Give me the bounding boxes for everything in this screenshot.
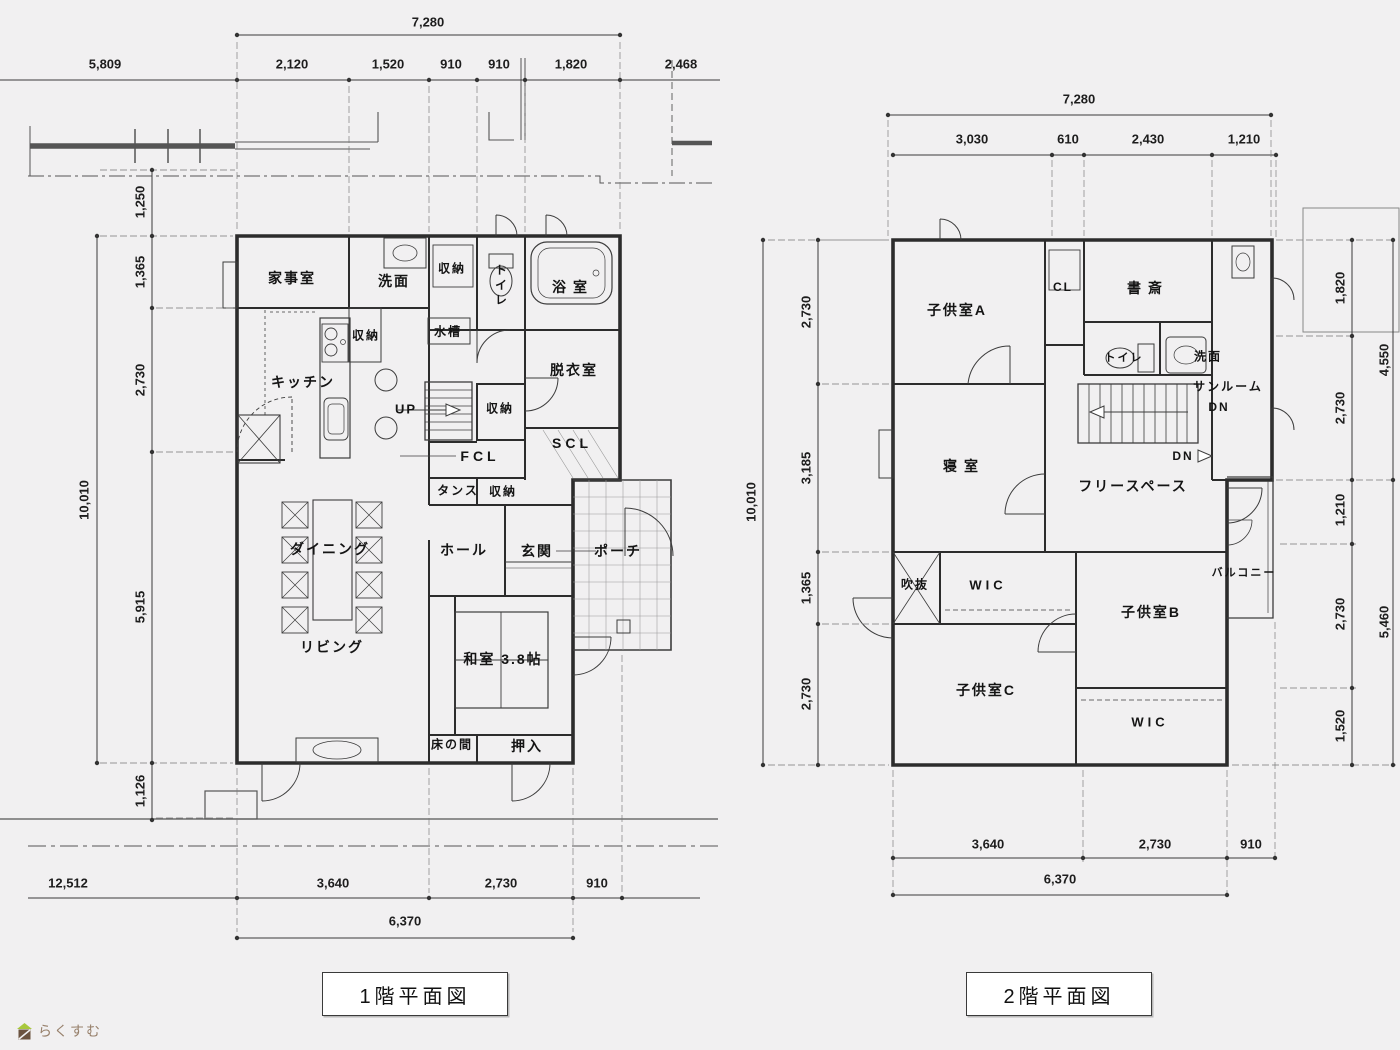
f1-dim-left-2: 2,730 (133, 364, 148, 397)
f1-room-label-genkan: 玄関 (521, 541, 553, 561)
f2-dim-bottom-2: 910 (1240, 837, 1262, 852)
f1-dim-top-6: 2,468 (665, 57, 698, 72)
f2-dim-left-3: 2,730 (799, 678, 814, 711)
f2-room-label-kodomoA: 子供室A (927, 300, 987, 320)
f1-room-label-shuno-fcl: 収納 (489, 483, 517, 500)
f2-room-label-cl: CL (1053, 280, 1073, 294)
f1-room-label-up: UP (395, 402, 417, 417)
f2-room-label-shinshitsu: 寝室 (943, 456, 985, 476)
f2-dim-left-2: 1,365 (799, 572, 814, 605)
f2-dim-top-2: 2,430 (1132, 132, 1165, 147)
site-logo: らくすむ (16, 1021, 102, 1041)
f1-dim-top-total: 7,280 (412, 15, 445, 30)
f1-room-label-porch: ポーチ (594, 541, 642, 561)
f1-room-label-oshiire: 押入 (511, 736, 543, 756)
f2-dim-left-total: 10,010 (744, 482, 759, 522)
floor1-title-box: 1階平面図 (322, 972, 508, 1016)
house-logo-icon (16, 1023, 33, 1040)
f1-room-label-tokonoma: 床の間 (431, 736, 473, 753)
f2-dim-right-1: 2,730 (1333, 392, 1348, 425)
fixtures-floor1 (223, 215, 673, 801)
f1-dim-left-total: 10,010 (77, 480, 92, 520)
f2-room-label-freespace: フリースペース (1078, 476, 1188, 496)
f1-dim-bottom-1: 3,640 (317, 876, 350, 891)
fixtures-floor2 (853, 208, 1399, 700)
f2-dim-bottom-1: 2,730 (1139, 837, 1172, 852)
f1-room-label-kitchen: キッチン (271, 372, 335, 392)
f1-dim-left-4: 1,126 (133, 775, 148, 808)
f1-room-label-scl: SCL (552, 435, 592, 451)
dimension-lines-floor2 (761, 113, 1396, 900)
f2-room-label-fukinuke: 吹抜 (901, 576, 929, 593)
f2-dim-left-1: 3,185 (799, 452, 814, 485)
f1-dim-bottom-3: 910 (586, 876, 608, 891)
walls-floor1 (237, 236, 620, 763)
f1-dim-top-3: 910 (440, 57, 462, 72)
f1-dim-top-4: 910 (488, 57, 510, 72)
f1-room-label-dining: ダイニング (290, 539, 370, 559)
f1-room-label-yokushitsu: 浴室 (552, 277, 594, 297)
f1-dim-top-1: 2,120 (276, 57, 309, 72)
f1-room-label-toire: トイレ (493, 264, 510, 309)
f2-room-label-senmen: 洗面 (1194, 348, 1222, 365)
floor1-title: 1階平面図 (359, 980, 470, 1009)
floor2-title: 2階平面図 (1003, 980, 1114, 1009)
f1-room-label-hall: ホール (440, 540, 488, 560)
f2-dim-top-1: 610 (1057, 132, 1079, 147)
f2-dim-right-4: 1,520 (1333, 710, 1348, 743)
f1-room-label-suiso: 水槽 (434, 323, 462, 340)
f1-room-label-kajishitsu: 家事室 (268, 268, 316, 288)
f1-room-label-datsui: 脱衣室 (550, 360, 598, 380)
f2-room-label-wic2: WIC (1131, 715, 1168, 730)
f1-dim-bottom-2: 2,730 (485, 876, 518, 891)
f2-room-label-dn1: DN (1208, 400, 1229, 414)
f1-dim-top-0: 5,809 (89, 57, 122, 72)
f2-room-label-kodomoC: 子供室C (956, 680, 1016, 700)
f2-room-label-balcony: バルコニー (1212, 564, 1277, 580)
f1-room-label-shuno-top: 収納 (438, 260, 466, 277)
f1-room-label-washitsu: 和室 3.8帖 (463, 649, 542, 669)
f1-dim-left-3: 5,915 (133, 591, 148, 624)
f2-room-label-wic1: WIC (969, 578, 1006, 593)
f1-dim-top-2: 1,520 (372, 57, 405, 72)
f1-room-label-senmen: 洗面 (378, 271, 410, 291)
site-lines (0, 58, 718, 846)
f2-dim-right-0: 1,820 (1333, 272, 1348, 305)
f1-dim-bottom-total: 6,370 (389, 914, 422, 929)
dimension-lines-floor1 (0, 33, 720, 940)
f2-dim-right-outer-1: 5,460 (1377, 606, 1392, 639)
f2-dim-top-3: 1,210 (1228, 132, 1261, 147)
floor2-title-box: 2階平面図 (966, 972, 1152, 1016)
f1-room-label-shuno-kitchen: 収納 (352, 327, 380, 344)
floorplan-linework (0, 0, 1400, 1050)
f1-room-label-shuno-stair: 収納 (486, 400, 514, 417)
f2-dim-right-outer-0: 4,550 (1377, 344, 1392, 377)
f2-room-label-sunroom: サンルーム (1193, 378, 1263, 395)
f1-room-label-fcl: FCL (460, 448, 499, 464)
f2-dim-top-total: 7,280 (1063, 92, 1096, 107)
f2-dim-top-0: 3,030 (956, 132, 989, 147)
f2-room-label-toire: トイレ (1105, 349, 1144, 365)
f2-dim-left-0: 2,730 (799, 296, 814, 329)
f2-dim-bottom-total: 6,370 (1044, 872, 1077, 887)
f2-dim-bottom-0: 3,640 (972, 837, 1005, 852)
f1-room-label-tansu: タンス (437, 482, 479, 499)
f1-dim-left-0: 1,250 (133, 186, 148, 219)
f1-room-label-living: リビング (300, 637, 364, 657)
f2-dim-right-2: 1,210 (1333, 494, 1348, 527)
f1-dim-top-5: 1,820 (555, 57, 588, 72)
f1-dim-bottom-0: 12,512 (48, 876, 88, 891)
f2-room-label-shosai: 書斎 (1127, 278, 1169, 298)
site-logo-text: らくすむ (38, 1021, 102, 1041)
f2-room-label-kodomoB: 子供室B (1121, 602, 1181, 622)
f2-dim-right-3: 2,730 (1333, 598, 1348, 631)
f2-room-label-dn2: DN (1172, 449, 1193, 463)
f1-dim-left-1: 1,365 (133, 256, 148, 289)
